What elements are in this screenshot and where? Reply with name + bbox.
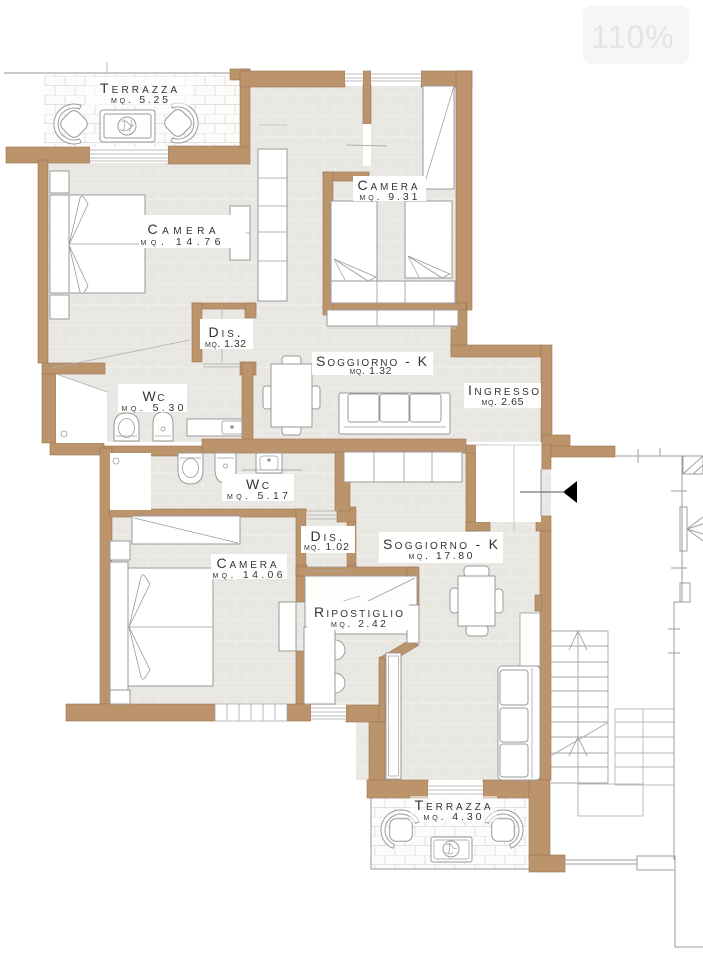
svg-text:mq. 2.65: mq. 2.65 bbox=[482, 396, 525, 408]
svg-text:mq. 2.42: mq. 2.42 bbox=[331, 618, 387, 630]
svg-text:mq. 9.31: mq. 9.31 bbox=[360, 191, 419, 203]
svg-text:mq. 5.30: mq. 5.30 bbox=[122, 402, 185, 414]
svg-text:mq. 14.76: mq. 14.76 bbox=[141, 236, 222, 248]
svg-text:110%: 110% bbox=[591, 19, 674, 55]
svg-text:mq. 1.32: mq. 1.32 bbox=[350, 365, 393, 377]
svg-text:mq. 5.17: mq. 5.17 bbox=[227, 490, 289, 502]
svg-text:mq. 4.30: mq. 4.30 bbox=[424, 811, 483, 823]
svg-text:mq. 14.06: mq. 14.06 bbox=[213, 569, 284, 581]
svg-text:mq. 17.80: mq. 17.80 bbox=[409, 550, 474, 562]
svg-text:mq. 1.32: mq. 1.32 bbox=[205, 338, 247, 350]
svg-text:mq. 1.02: mq. 1.02 bbox=[304, 541, 350, 553]
svg-text:mq. 5.25: mq. 5.25 bbox=[111, 94, 169, 106]
